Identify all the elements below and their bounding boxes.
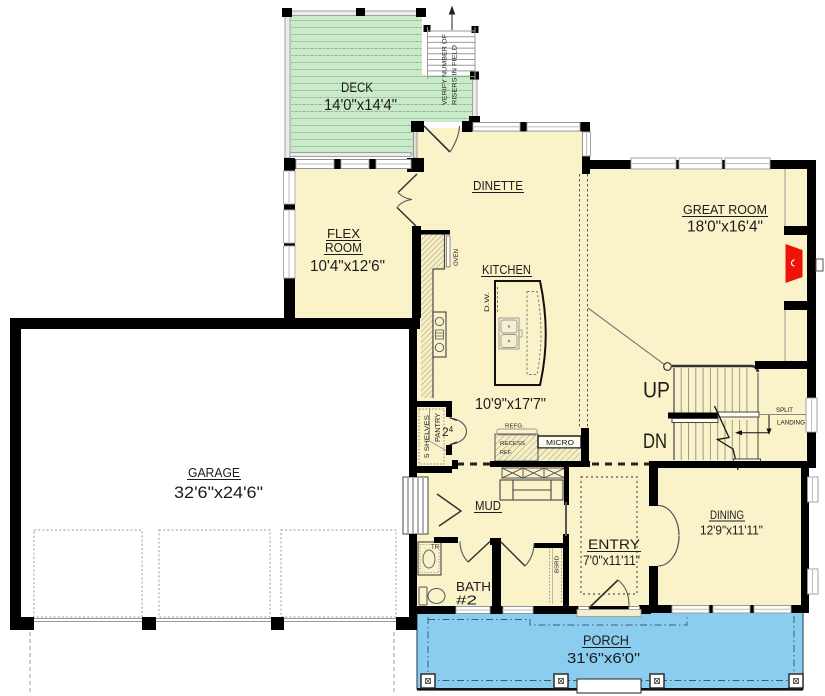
svg-text:SPLIT: SPLIT: [776, 407, 793, 414]
svg-text:MUD: MUD: [475, 498, 501, 513]
svg-text:10'9"x17'7": 10'9"x17'7": [475, 396, 546, 413]
svg-text:MICRO: MICRO: [546, 440, 575, 447]
svg-text:32'6"x24'6": 32'6"x24'6": [174, 483, 263, 502]
svg-text:RISERS IN FIELD: RISERS IN FIELD: [452, 44, 459, 105]
svg-text:18'0"x16'4": 18'0"x16'4": [687, 219, 763, 236]
svg-text:ROOM: ROOM: [325, 240, 362, 255]
svg-text:TR: TR: [431, 545, 440, 551]
svg-text:DECK: DECK: [341, 80, 373, 95]
svg-text:UP: UP: [643, 378, 670, 403]
svg-text:KITCHEN: KITCHEN: [482, 262, 531, 277]
svg-text:14'0"x14'4": 14'0"x14'4": [324, 97, 397, 114]
svg-text:VERIFY NUMBER OF: VERIFY NUMBER OF: [442, 34, 449, 105]
svg-text:D.W.: D.W.: [484, 292, 491, 312]
svg-text:DINETTE: DINETTE: [473, 178, 523, 193]
svg-text:PANTRY: PANTRY: [435, 413, 442, 442]
svg-text:OVEN: OVEN: [454, 249, 460, 266]
svg-text:5 SHELVES: 5 SHELVES: [424, 414, 431, 458]
svg-text:DINING: DINING: [710, 510, 744, 522]
svg-text:LANDING: LANDING: [777, 420, 805, 427]
svg-text:12'9"x11'11": 12'9"x11'11": [700, 523, 763, 538]
svg-text:GREAT ROOM: GREAT ROOM: [683, 202, 767, 217]
svg-text:GARAGE: GARAGE: [188, 465, 240, 480]
svg-text:FLEX: FLEX: [327, 226, 360, 241]
svg-text:31'6"x6'0": 31'6"x6'0": [567, 650, 640, 667]
svg-text:REFG.: REFG.: [505, 424, 524, 430]
svg-text:ENTRY: ENTRY: [588, 537, 640, 552]
svg-text:#2: #2: [456, 593, 477, 608]
svg-text:PORCH: PORCH: [583, 633, 629, 648]
svg-text:RECESS: RECESS: [500, 441, 525, 447]
svg-text:7'0"x11'11": 7'0"x11'11": [583, 552, 640, 568]
svg-text:REF.: REF.: [500, 450, 512, 456]
svg-text:10'4"x12'6": 10'4"x12'6": [310, 258, 385, 275]
svg-text:BSRD: BSRD: [555, 556, 561, 573]
svg-text:DN: DN: [643, 430, 667, 453]
